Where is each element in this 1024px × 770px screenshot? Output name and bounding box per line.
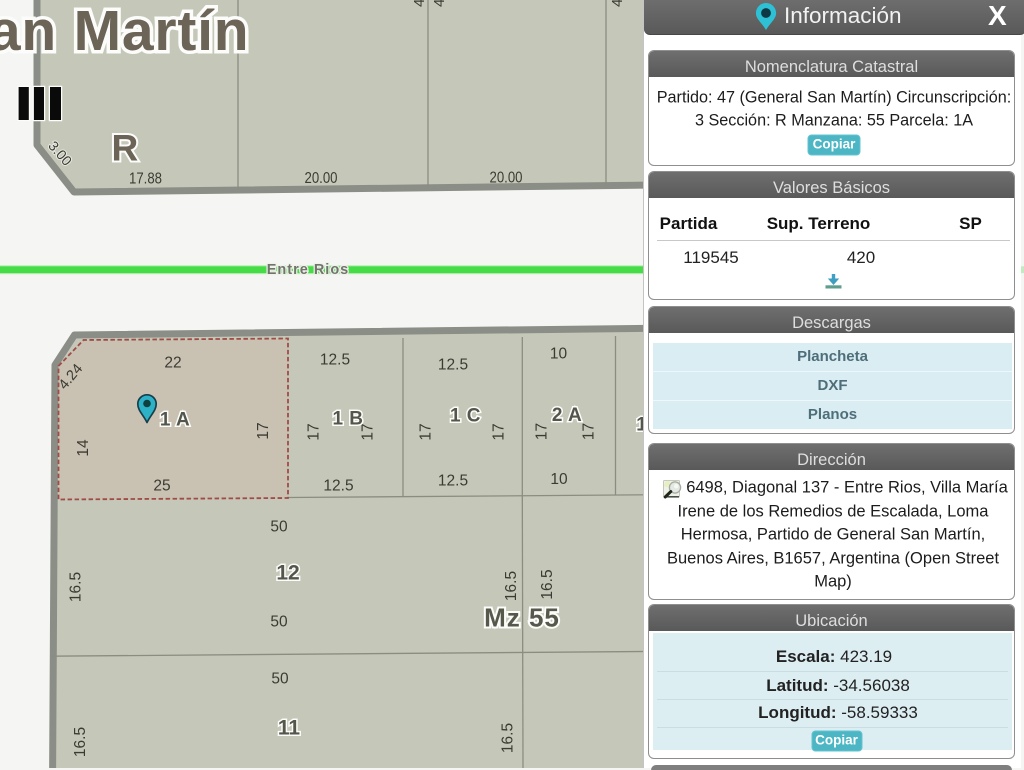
svg-text:17: 17: [306, 423, 323, 440]
svg-text:4: 4: [431, 0, 448, 7]
svg-text:2 A: 2 A: [552, 405, 582, 426]
svg-text:16.5: 16.5: [500, 723, 517, 753]
svg-text:22: 22: [164, 355, 181, 372]
svg-text:16.5: 16.5: [539, 569, 556, 599]
svg-text:12.5: 12.5: [323, 478, 353, 495]
svg-text:17: 17: [491, 423, 508, 440]
svg-text:10: 10: [550, 471, 568, 488]
svg-text:San Martín: San Martín: [0, 0, 249, 63]
svg-text:4: 4: [609, 0, 626, 7]
svg-text:1 C: 1 C: [450, 406, 481, 427]
svg-text:17: 17: [418, 423, 435, 440]
svg-text:14: 14: [75, 439, 92, 457]
svg-text:16.5: 16.5: [68, 572, 85, 602]
svg-text:17: 17: [534, 423, 551, 440]
svg-text:R: R: [112, 128, 139, 169]
svg-text:11: 11: [278, 717, 301, 740]
svg-text:Mz 55: Mz 55: [484, 603, 560, 633]
svg-text:17.88: 17.88: [129, 171, 162, 188]
svg-text:12.5: 12.5: [438, 473, 468, 490]
svg-text:1 A: 1 A: [160, 410, 190, 431]
svg-text:17: 17: [581, 423, 598, 440]
svg-text:10: 10: [550, 346, 568, 363]
svg-text:20.00: 20.00: [305, 170, 338, 187]
svg-text:1 B: 1 B: [332, 409, 363, 430]
svg-text:16.5: 16.5: [503, 571, 520, 601]
svg-text:16.5: 16.5: [72, 727, 89, 757]
svg-text:Entre Rios: Entre Rios: [267, 262, 350, 278]
svg-text:17: 17: [255, 422, 272, 439]
svg-text:4: 4: [411, 0, 428, 7]
svg-text:12.5: 12.5: [320, 352, 350, 369]
svg-text:50: 50: [270, 614, 288, 631]
svg-text:50: 50: [271, 671, 289, 688]
svg-text:12: 12: [276, 562, 299, 585]
svg-text:50: 50: [270, 519, 288, 536]
svg-text:20.00: 20.00: [490, 170, 523, 187]
svg-text:25: 25: [153, 478, 170, 495]
svg-text:12.5: 12.5: [438, 357, 468, 374]
